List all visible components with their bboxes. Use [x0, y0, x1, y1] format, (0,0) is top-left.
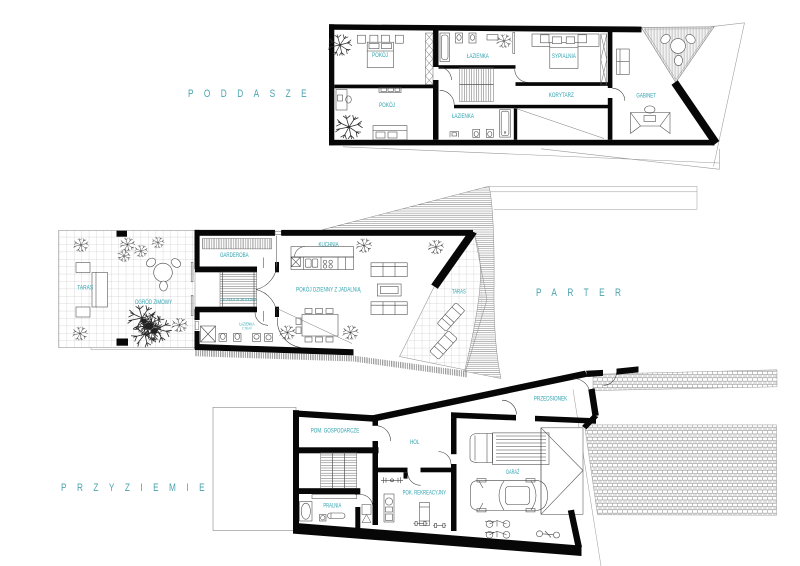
svg-text:GARDEROBA: GARDEROBA — [220, 252, 249, 259]
svg-text:GABINET: GABINET — [636, 93, 656, 100]
svg-text:POM. GOSPODARCZE: POM. GOSPODARCZE — [311, 428, 360, 435]
svg-text:PRZYZIEMIE: PRZYZIEMIE — [61, 482, 215, 494]
svg-text:POKÓJ DZIENNY Z JADALNIĄ: POKÓJ DZIENNY Z JADALNIĄ — [296, 287, 361, 294]
svg-text:TARAS: TARAS — [452, 289, 466, 296]
svg-text:POKÓJ: POKÓJ — [372, 52, 388, 59]
svg-text:HOL: HOL — [410, 439, 420, 446]
svg-text:PRZEDSIONEK: PRZEDSIONEK — [534, 396, 568, 403]
svg-text:KUCHNIA: KUCHNIA — [319, 242, 340, 249]
svg-text:GARAŻ: GARAŻ — [506, 469, 520, 476]
svg-text:KLATKA SCHODOWA: KLATKA SCHODOWA — [222, 297, 257, 302]
svg-text:PRALNIA: PRALNIA — [323, 503, 342, 510]
svg-text:ŁAZIENKA: ŁAZIENKA — [452, 113, 475, 120]
svg-text:OGRÓD ZIMOWY: OGRÓD ZIMOWY — [135, 299, 172, 306]
svg-text:PARTER: PARTER — [536, 287, 631, 299]
svg-text:POK. REKREACYJNY: POK. REKREACYJNY — [403, 489, 446, 496]
svg-text:TARAS: TARAS — [77, 285, 93, 292]
svg-text:POKÓJ: POKÓJ — [379, 102, 395, 109]
svg-text:7,78 m²: 7,78 m² — [242, 327, 253, 331]
svg-text:KORYTARZ: KORYTARZ — [549, 92, 574, 99]
svg-text:PODDASZE: PODDASZE — [188, 88, 317, 100]
svg-text:ŁAZIENKA: ŁAZIENKA — [467, 53, 490, 60]
svg-text:SYPIALNIA: SYPIALNIA — [552, 53, 577, 60]
